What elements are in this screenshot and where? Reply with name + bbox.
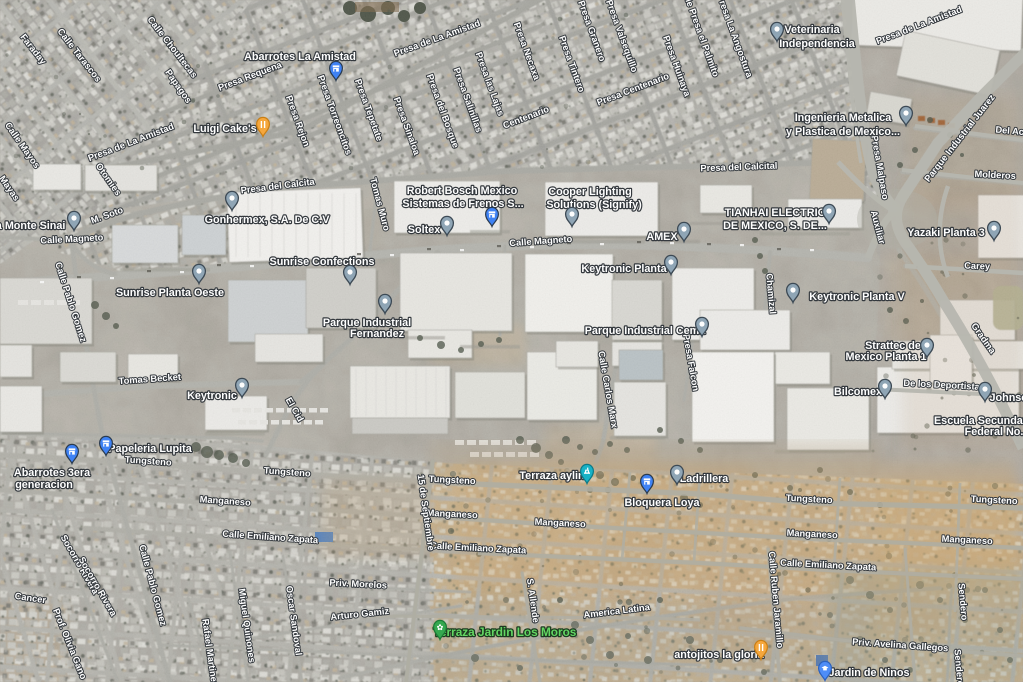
svg-text:DE MEXICO, S. DE...: DE MEXICO, S. DE... bbox=[723, 220, 827, 232]
svg-text:Sistemas de Frenos S...: Sistemas de Frenos S... bbox=[402, 198, 523, 210]
svg-text:Gonhermex, S.A. De C.V: Gonhermex, S.A. De C.V bbox=[205, 214, 331, 226]
svg-text:Soltex: Soltex bbox=[408, 224, 440, 236]
svg-text:Ingenieria Metalica: Ingenieria Metalica bbox=[795, 112, 893, 124]
svg-text:TIANHAI ELECTRIC: TIANHAI ELECTRIC bbox=[725, 207, 826, 219]
svg-text:Papeleria Lupita: Papeleria Lupita bbox=[108, 443, 192, 455]
svg-text:ria Monte Sinai: ria Monte Sinai bbox=[0, 220, 65, 232]
svg-text:Jardin de Ninos: Jardin de Ninos bbox=[829, 667, 910, 679]
svg-text:Bloquera Loya: Bloquera Loya bbox=[625, 497, 701, 509]
svg-text:Parque Industrial Cema: Parque Industrial Cema bbox=[585, 325, 707, 337]
svg-text:AMEX: AMEX bbox=[646, 231, 678, 243]
svg-text:Carey: Carey bbox=[964, 261, 991, 272]
svg-text:Keytronic Planta V: Keytronic Planta V bbox=[809, 291, 905, 303]
svg-text:Sunrise Confections: Sunrise Confections bbox=[270, 256, 375, 268]
svg-text:Fernandez: Fernandez bbox=[350, 328, 405, 340]
svg-text:Keytronic Planta I: Keytronic Planta I bbox=[581, 263, 672, 275]
svg-text:Robert Bosch Mexico: Robert Bosch Mexico bbox=[407, 185, 518, 197]
svg-text:Veterinaria: Veterinaria bbox=[784, 24, 840, 36]
svg-text:Yazaki Planta 3: Yazaki Planta 3 bbox=[907, 227, 984, 239]
svg-text:Mexico Planta 1: Mexico Planta 1 bbox=[845, 351, 926, 363]
svg-text:Terraza Jardin Los Moros: Terraza Jardin Los Moros bbox=[434, 625, 577, 639]
svg-text:generacion: generacion bbox=[15, 479, 73, 491]
svg-text:Cooper Lighting: Cooper Lighting bbox=[548, 186, 631, 198]
svg-text:Sunrise Planta Oeste: Sunrise Planta Oeste bbox=[116, 287, 224, 299]
svg-text:Terraza aylin: Terraza aylin bbox=[519, 470, 584, 482]
svg-text:Abarrotes 3era: Abarrotes 3era bbox=[14, 467, 91, 479]
svg-text:Federal No...: Federal No... bbox=[965, 426, 1023, 438]
svg-text:y Plastica de Mexico...: y Plastica de Mexico... bbox=[786, 126, 900, 138]
svg-text:Ladrillera: Ladrillera bbox=[680, 473, 730, 485]
svg-text:Johnson: Johnson bbox=[990, 392, 1023, 404]
svg-text:Solutions (Signify): Solutions (Signify) bbox=[546, 199, 642, 211]
svg-text:Keytronic: Keytronic bbox=[187, 390, 237, 402]
svg-text:Independencia: Independencia bbox=[779, 38, 856, 50]
svg-text:Bilcomex: Bilcomex bbox=[834, 386, 882, 398]
svg-text:antojitos la gloria: antojitos la gloria bbox=[674, 649, 764, 661]
svg-text:Luigi Cake's: Luigi Cake's bbox=[193, 123, 256, 135]
svg-text:Abarrotes La Amistad: Abarrotes La Amistad bbox=[244, 51, 356, 63]
